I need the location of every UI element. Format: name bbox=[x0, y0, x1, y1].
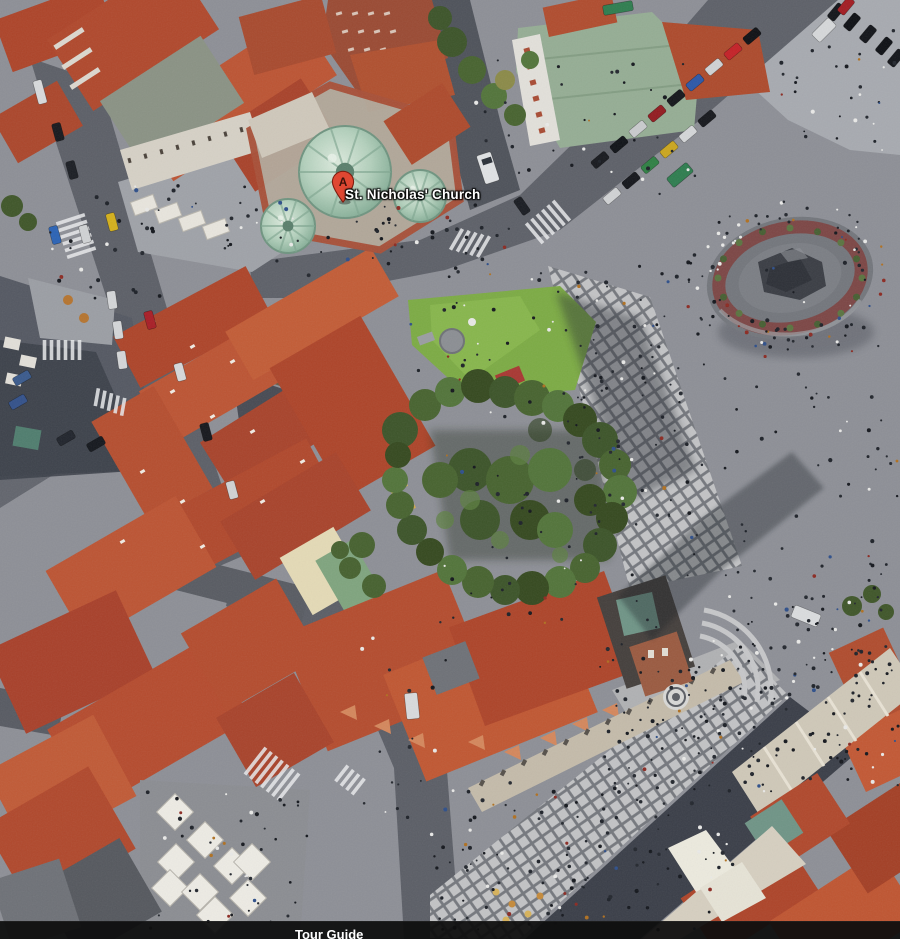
marker-label: St. Nicholas' Church bbox=[345, 187, 480, 202]
effects-layer bbox=[0, 0, 900, 939]
tour-guide-bar[interactable]: Tour Guide bbox=[0, 921, 900, 939]
tour-guide-label: Tour Guide bbox=[295, 928, 363, 939]
map-viewport[interactable]: A St. Nicholas' Church Tour Guide bbox=[0, 0, 900, 939]
aerial-imagery[interactable] bbox=[0, 0, 900, 939]
map-shape bbox=[0, 0, 900, 939]
